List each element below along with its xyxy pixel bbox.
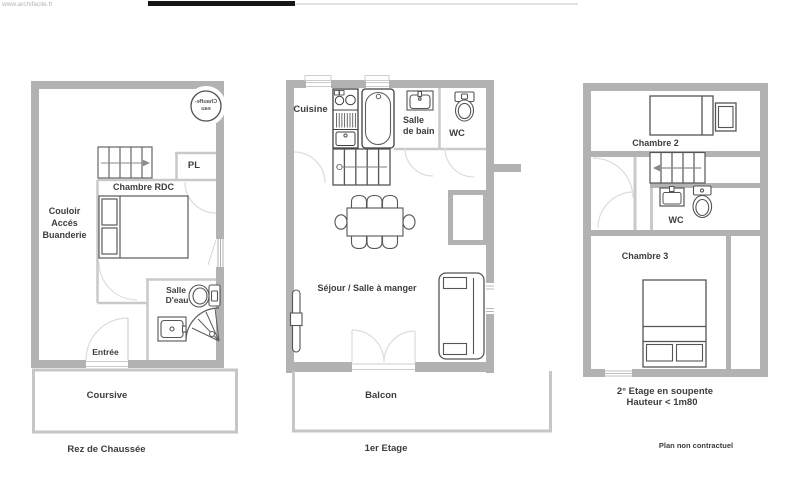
label-wc-first: WC xyxy=(449,129,465,139)
washbasin-bathroom xyxy=(407,91,433,110)
title-rez-de-chaussee: Rez de Chaussée xyxy=(67,445,145,455)
label-salle-de-bain-1: Salle xyxy=(403,116,424,125)
label-wc-second: WC xyxy=(669,216,684,225)
staircase xyxy=(650,153,705,184)
label-chambre3: Chambre 3 xyxy=(622,252,669,261)
label-chambre-rdc: Chambre RDC xyxy=(113,183,174,192)
bed-chambre3 xyxy=(643,280,706,367)
washbasin-ground xyxy=(158,317,186,341)
footer-plan-non-contractuel: Plan non contractuel xyxy=(659,442,733,450)
chauffe-eau-line2: eau xyxy=(195,106,217,113)
second-floor-window xyxy=(605,371,632,376)
label-entree: Entrée xyxy=(92,348,118,357)
label-salle-eau-1: Salle xyxy=(166,286,186,295)
label-balcon: Balcon xyxy=(365,391,397,401)
toilet-first-floor xyxy=(455,92,474,121)
stair-void xyxy=(451,193,486,243)
wardrobe-first-floor xyxy=(333,149,390,185)
bathtub xyxy=(362,89,394,148)
label-coursive: Coursive xyxy=(87,391,128,401)
floor-plan-drawing xyxy=(0,0,800,480)
label-sejour: Séjour / Salle à manger xyxy=(317,284,416,293)
radiator xyxy=(291,290,303,352)
label-buanderie: Buanderie xyxy=(42,231,86,240)
washbasin-second-floor xyxy=(660,187,684,207)
wardrobe-ground xyxy=(98,147,152,178)
label-acces: Accés xyxy=(51,219,78,228)
toilet-ground xyxy=(189,285,220,307)
title-1er-etage: 1er Etage xyxy=(365,444,408,454)
shower-ground xyxy=(186,308,219,341)
second-floor-door-arcs xyxy=(593,158,634,228)
chauffe-eau-label: Chauffe- eau xyxy=(195,99,217,113)
chauffe-eau-line1: Chauffe- xyxy=(195,99,217,106)
label-salle-eau-2: D'eau xyxy=(166,296,189,305)
toilet-second-floor xyxy=(693,186,712,218)
label-couloir: Couloir xyxy=(49,207,81,216)
label-salle-de-bain-2: de bain xyxy=(403,127,435,136)
floor-plan-page: www.archifacile.fr xyxy=(0,0,800,480)
balcony-outline xyxy=(294,371,551,431)
subtitle-hauteur: Hauteur < 1m80 xyxy=(626,398,697,408)
title-2e-etage: 2° Etage en soupente xyxy=(617,387,713,397)
sofa xyxy=(439,273,484,359)
bed-chambre2 xyxy=(650,96,736,135)
coursive-outline xyxy=(34,370,237,432)
dining-table xyxy=(335,196,415,249)
label-cuisine: Cuisine xyxy=(293,105,327,115)
ground-floor-entry-threshold xyxy=(86,362,128,367)
bed-ground xyxy=(99,196,188,258)
kitchen-unit xyxy=(333,89,358,148)
label-pl: PL xyxy=(188,161,200,171)
label-chambre2: Chambre 2 xyxy=(632,139,679,148)
ground-floor-window xyxy=(208,239,223,267)
